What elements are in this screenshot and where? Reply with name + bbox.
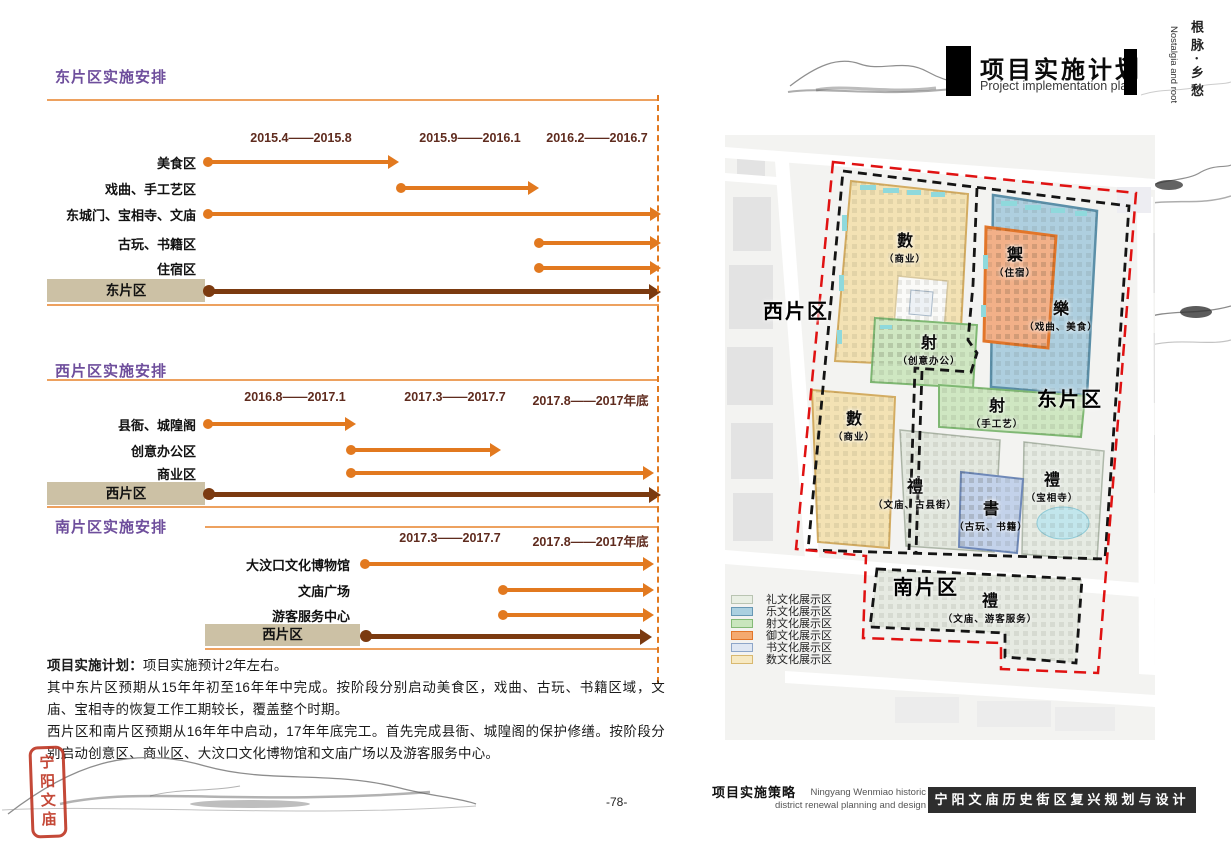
summary-box: 东片区 — [47, 279, 205, 302]
gantt-row-label: 戏曲、手工艺区 — [18, 179, 196, 198]
seal-text: 宁阳文庙 — [36, 754, 60, 831]
gantt-row-label: 县衙、城隍阁 — [18, 415, 196, 434]
page: 东片区实施安排 2015.4——2015.8 2015.9——2016.1 20… — [0, 0, 1231, 854]
gantt-row-label: 东城门、宝相寺、文庙 — [18, 205, 196, 224]
period-label: 2017.8——2017年底 — [518, 390, 663, 409]
footer-strategy-block: 项目实施策略 Ningyang Wenmiao historic distric… — [712, 787, 926, 812]
section-title-south: 南片区实施安排 — [55, 516, 167, 537]
gantt-row-label: 住宿区 — [18, 259, 196, 278]
period-label: 2015.4——2015.8 — [240, 131, 362, 145]
side-motto-cn: 根脉·乡愁 — [1186, 20, 1205, 102]
zone-label: 射 （手工艺） — [971, 398, 1024, 430]
period-label: 2016.8——2017.1 — [233, 390, 357, 404]
gantt-row-label: 商业区 — [18, 464, 196, 483]
gantt-bar — [348, 448, 497, 452]
zone-label: 數 （商业） — [884, 233, 926, 265]
district-label-south: 南片区 — [893, 571, 959, 600]
timeline-end-dashed-line — [657, 95, 659, 683]
period-label: 2017.8——2017年底 — [518, 531, 663, 550]
section-title-east: 东片区实施安排 — [55, 66, 167, 87]
summary-label: 东片区 — [47, 279, 205, 302]
gantt-bar — [348, 471, 650, 475]
gantt-bar — [205, 422, 352, 426]
gantt-row-label: 创意办公区 — [18, 441, 196, 460]
gantt-row-label: 文庙广场 — [172, 581, 350, 600]
gantt-bar — [398, 186, 535, 190]
divider-line — [205, 526, 659, 528]
footer-strategy-en1: Ningyang Wenmiao historic — [811, 787, 926, 798]
legend-item: 数文化展示区 — [731, 651, 832, 667]
notes-line1: 项目实施预计2年左右。 — [143, 658, 288, 673]
footer-strategy-en2: district renewal planning and design — [712, 800, 926, 813]
gantt-summary-bar — [205, 492, 657, 497]
notes-lead: 项目实施计划： — [47, 658, 143, 673]
summary-box: 西片区 — [205, 624, 360, 646]
zone-label: 數 （商业） — [833, 411, 875, 443]
district-label-west: 西片区 — [763, 295, 829, 324]
gantt-summary-bar — [205, 289, 657, 294]
legend-swatch — [731, 655, 753, 664]
divider-line — [47, 379, 659, 381]
gantt-bar — [536, 266, 657, 270]
footer-title-band: 宁阳文庙历史街区复兴规划与设计 — [928, 787, 1196, 813]
gantt-bar — [536, 241, 657, 245]
zone-label: 禮 （宝相寺） — [1026, 472, 1079, 504]
gantt-summary-bar — [362, 634, 648, 639]
zone-label: 禦 （住宿） — [994, 247, 1036, 279]
ink-mountain-art-bottom — [0, 726, 478, 830]
ink-mountain-art-top — [786, 38, 964, 108]
zone-label: 書 （古玩、书籍） — [954, 501, 1028, 533]
gantt-bar — [500, 588, 650, 592]
summary-box: 西片区 — [47, 482, 205, 505]
period-label: 2016.2——2016.7 — [535, 131, 659, 145]
zone-label: 樂 （戏曲、美食） — [1024, 301, 1098, 333]
summary-label: 西片区 — [47, 482, 205, 505]
district-label-east: 东片区 — [1037, 383, 1103, 412]
notes-para1: 其中东片区预期从15年年初至16年年中完成。按阶段分别启动美食区，戏曲、古玩、书… — [47, 677, 665, 721]
gantt-bar — [362, 562, 650, 566]
gantt-bar — [205, 160, 395, 164]
gantt-row-label: 大汶口文化博物馆 — [172, 555, 350, 574]
divider-line — [47, 304, 659, 306]
zone-label: 射 （创意办公） — [897, 335, 960, 367]
gantt-row-label: 游客服务中心 — [172, 606, 350, 625]
period-label: 2017.3——2017.7 — [388, 531, 512, 545]
footer-strategy-cn: 项目实施策略 — [712, 787, 796, 800]
title-black-tick — [1124, 49, 1137, 95]
gantt-bar — [500, 613, 650, 617]
section-title-west: 西片区实施安排 — [55, 360, 167, 381]
red-seal: 宁阳文庙 — [28, 745, 67, 838]
period-label: 2017.3——2017.7 — [393, 390, 517, 404]
divider-line — [205, 648, 659, 650]
zone-label: 禮 （文庙、古县街） — [873, 479, 957, 511]
side-motto-en: Nostalgia and root — [1168, 26, 1179, 103]
title-black-bar — [946, 46, 971, 96]
page-title-en: Project implementation plan — [980, 79, 1134, 93]
gantt-row-label: 古玩、书籍区 — [18, 234, 196, 253]
divider-line — [47, 506, 659, 508]
page-number: -78- — [606, 795, 627, 809]
district-map: 數 （商业） 禦 （住宿） 樂 （戏曲、美食） 射 （创意办公） 數 （商业） … — [725, 135, 1155, 740]
summary-label: 西片区 — [205, 624, 360, 646]
divider-line — [47, 99, 659, 101]
gantt-row-label: 美食区 — [18, 153, 196, 172]
period-label: 2015.9——2016.1 — [408, 131, 532, 145]
gantt-bar — [205, 212, 657, 216]
